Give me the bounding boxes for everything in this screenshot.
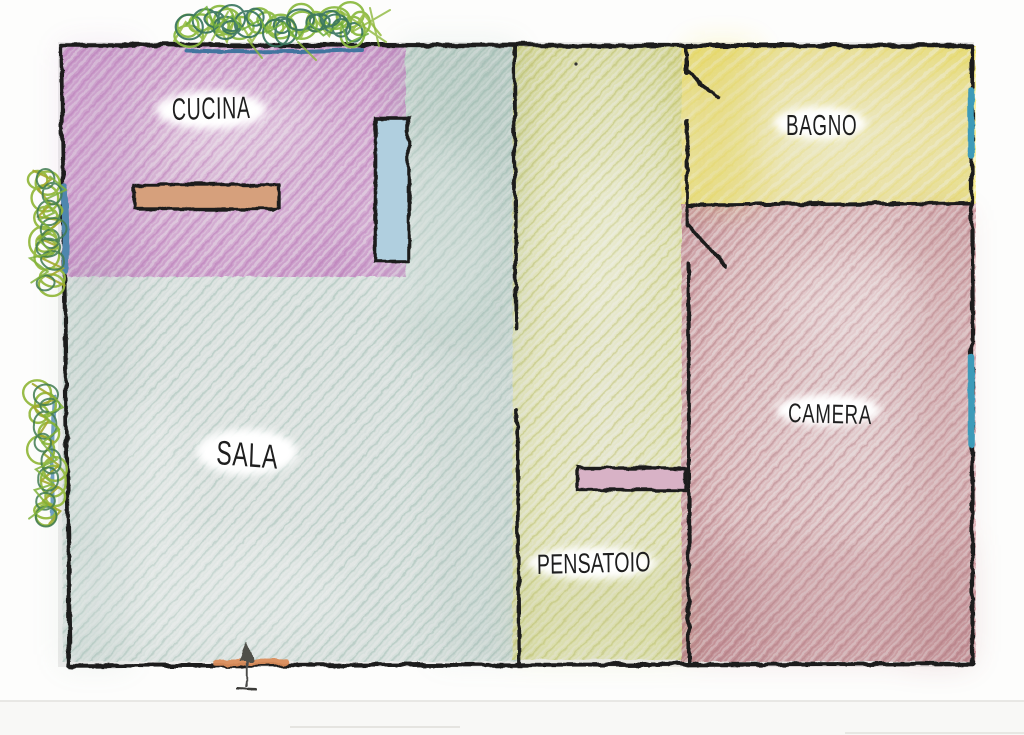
- svg-text:PENSATOIO: PENSATOIO: [537, 547, 651, 581]
- svg-text:SALA: SALA: [216, 435, 279, 477]
- svg-text:CUCINA: CUCINA: [172, 92, 251, 128]
- svg-text:CAMERA: CAMERA: [788, 398, 872, 430]
- svg-text:BAGNO: BAGNO: [786, 110, 857, 142]
